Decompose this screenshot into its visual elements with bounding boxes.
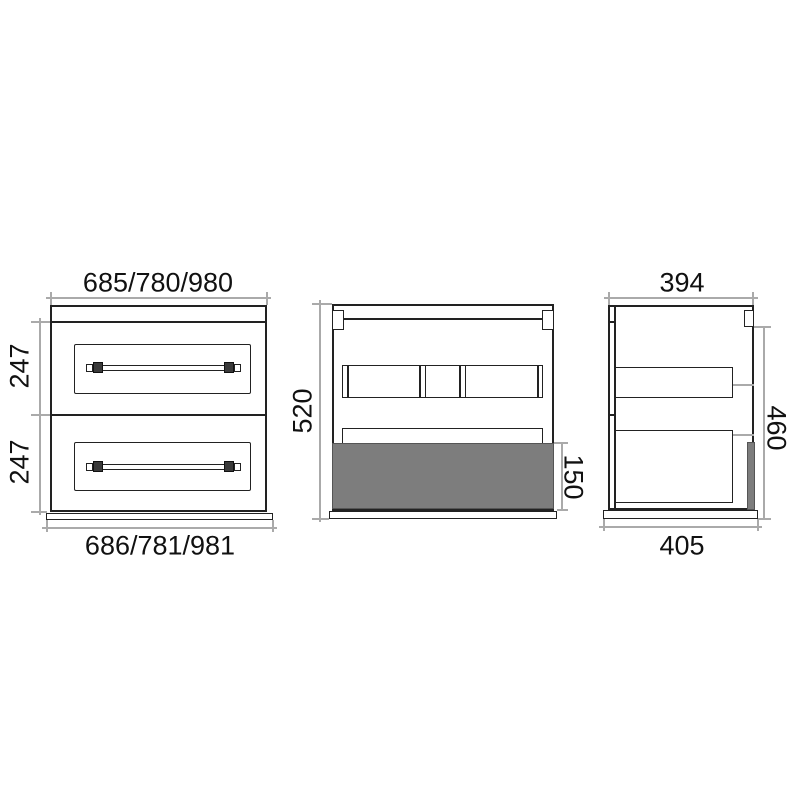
front-base-plinth [46, 513, 273, 520]
side-bottom-extension-right [757, 519, 759, 531]
front-width-top-label: 685/780/980 [83, 270, 233, 297]
side-front-panel-joint-lower [608, 414, 616, 416]
side-lower-drawer-runner-line [733, 434, 754, 436]
lower-drawer-handle-cap-right [234, 463, 241, 471]
upper-drawer-handle-mount-right [224, 362, 234, 373]
back-hanger-bracket-left [332, 310, 344, 330]
back-height-dimension-line [319, 300, 321, 522]
front-bottom-extension-right [272, 520, 274, 532]
side-depth-top-label: 394 [659, 270, 704, 297]
back-hanger-bracket-right [542, 310, 554, 330]
side-front-panel-joint-upper [608, 321, 616, 323]
upper-drawer-handle-cap-left [86, 364, 93, 372]
back-band-stiffener-line-3 [425, 366, 427, 397]
front-top-rail-line [51, 321, 266, 323]
lower-drawer-handle-cap-left [86, 463, 93, 471]
side-upper-drawer-box [615, 367, 733, 398]
front-bottom-extension-left [46, 520, 48, 532]
back-band-stiffener-line-6 [537, 366, 539, 397]
back-lower-rail [342, 428, 543, 444]
back-bottom-section-height-label: 150 [560, 454, 587, 499]
front-lower-drawer-height-label: 247 [7, 439, 34, 484]
front-left-dimension-line [39, 318, 41, 515]
front-top-extension-left [50, 292, 52, 305]
side-bottom-dimension-line [599, 526, 762, 528]
upper-drawer-handle-cap-right [234, 364, 241, 372]
back-carcass-height-label: 520 [290, 388, 317, 433]
side-height-extension-bottom [758, 518, 771, 520]
upper-drawer-handle-mount-left [93, 362, 103, 373]
front-left-extension-top [31, 321, 50, 323]
technical-drawing-canvas: 685/780/980 247 247 686/781/981 [0, 0, 800, 800]
front-left-extension-middle [31, 414, 50, 416]
side-hanger-bracket [744, 310, 754, 327]
side-bottom-extension-left [603, 519, 605, 531]
upper-drawer-handle-bar [86, 365, 241, 371]
back-band-stiffener-line-1 [347, 366, 349, 397]
back-plinth-extension-bottom [557, 509, 568, 511]
back-shaded-bottom-section [332, 443, 554, 509]
back-height-extension-bottom [312, 518, 329, 520]
lower-drawer-handle-mount-left [93, 461, 103, 472]
back-panel-band [342, 365, 543, 398]
back-band-stiffener-line-4 [459, 366, 461, 397]
back-hanger-rail-line [343, 318, 543, 320]
lower-drawer-handle-mount-right [224, 461, 234, 472]
side-top-extension-right [752, 292, 754, 305]
side-base-plinth [603, 510, 758, 519]
side-top-extension-left [608, 292, 610, 305]
front-drawer-divider-line [51, 414, 266, 416]
side-shaded-back-strip [747, 442, 755, 510]
front-bottom-dimension-line [42, 527, 277, 529]
side-lower-drawer-box [615, 430, 733, 503]
back-band-stiffener-line-5 [465, 366, 467, 397]
back-base-plinth [329, 511, 557, 519]
back-height-extension-top [312, 303, 332, 305]
back-band-stiffener-line-2 [419, 366, 421, 397]
front-top-extension-right [266, 292, 268, 305]
side-height-label: 460 [763, 405, 790, 450]
lower-drawer-handle-bar [86, 464, 241, 470]
side-depth-bottom-label: 405 [659, 533, 704, 560]
front-width-bottom-label: 686/781/981 [85, 533, 235, 560]
side-upper-drawer-runner-line [733, 384, 754, 386]
front-upper-drawer-height-label: 247 [7, 343, 34, 388]
